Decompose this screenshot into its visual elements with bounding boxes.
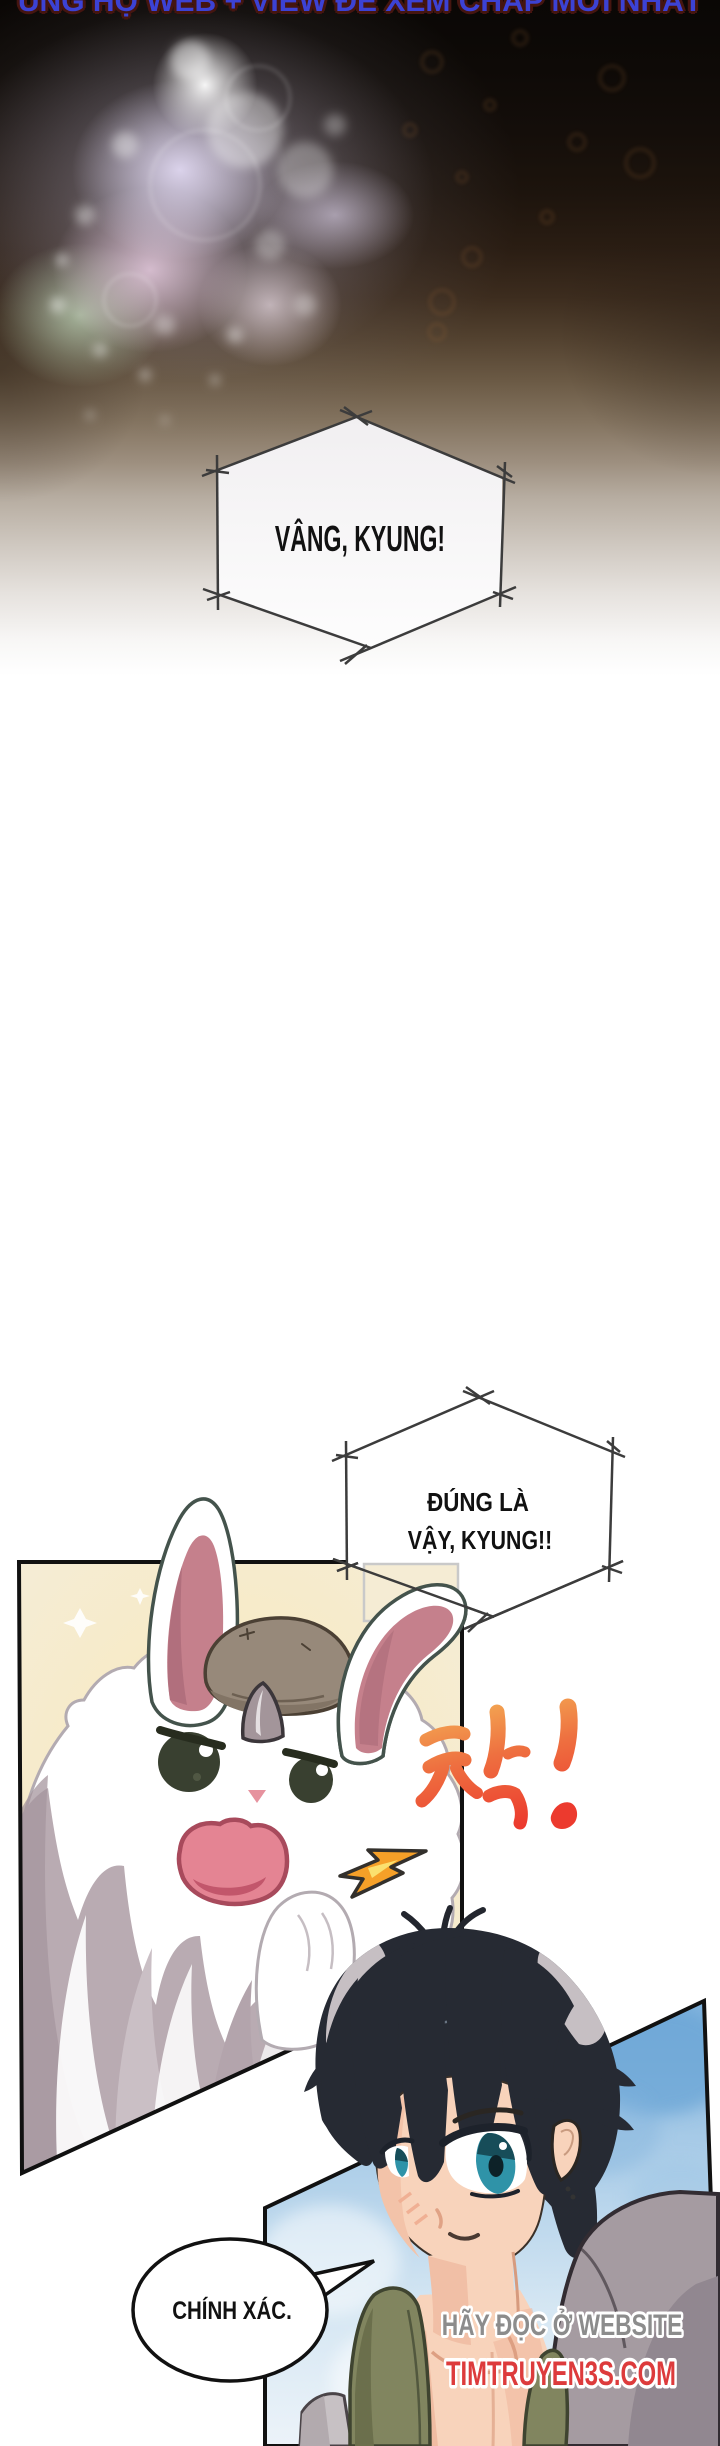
svg-text:HÃY ĐỌC Ở WEBSITE: HÃY ĐỌC Ở WEBSITE xyxy=(442,2308,683,2342)
svg-text:TIMTRUYEN3S.COM: TIMTRUYEN3S.COM xyxy=(446,2355,676,2393)
svg-text:ĐÚNG LÀ: ĐÚNG LÀ xyxy=(427,1487,529,1517)
svg-text:CHÍNH XÁC.: CHÍNH XÁC. xyxy=(172,2296,292,2324)
svg-text:VÂNG, KYUNG!: VÂNG, KYUNG! xyxy=(275,519,445,559)
svg-text:VẬY, KYUNG!!: VẬY, KYUNG!! xyxy=(408,1525,552,1556)
